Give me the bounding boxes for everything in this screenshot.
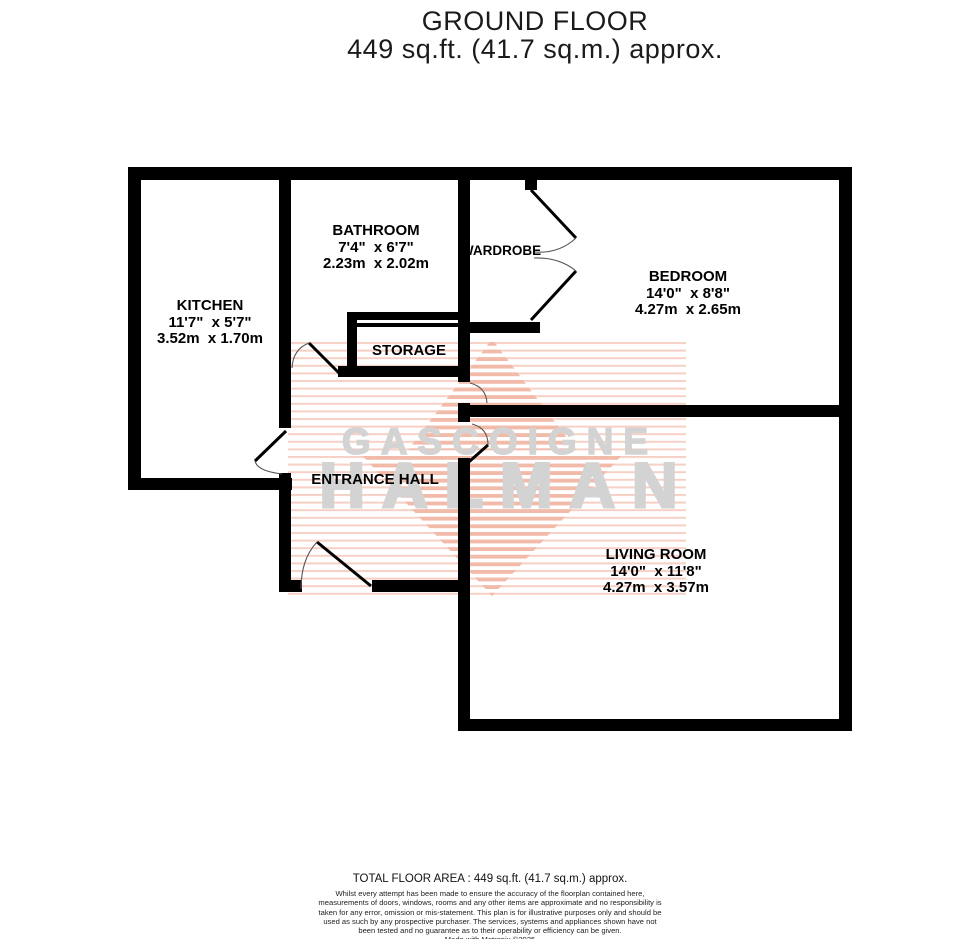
bedroom-door-arc bbox=[470, 383, 487, 403]
bathroom-door-arc bbox=[292, 343, 309, 368]
room-name: BEDROOM bbox=[608, 269, 768, 286]
wall-kitchen-divider-lower bbox=[279, 473, 291, 592]
disclaimer-text: Whilst every attempt has been made to en… bbox=[314, 889, 666, 935]
wall-storage-top bbox=[352, 323, 458, 327]
room-dims-metric: 3.52m x 1.70m bbox=[130, 331, 290, 348]
room-dims-metric: 2.23m x 2.02m bbox=[296, 256, 456, 273]
room-label-living-room: LIVING ROOM 14'0" x 11'8" 4.27m x 3.57m bbox=[576, 547, 736, 597]
kitchen-door-arc bbox=[255, 461, 282, 474]
wall-central-upper bbox=[458, 167, 470, 382]
room-name: STORAGE bbox=[362, 343, 456, 360]
room-label-storage: STORAGE bbox=[362, 343, 456, 360]
wall-hall-bottom-left bbox=[279, 580, 302, 592]
room-dims-imperial: 11'7" x 5'7" bbox=[130, 315, 290, 332]
room-name: WARDROBE bbox=[455, 243, 547, 260]
wall-outer-right bbox=[839, 167, 852, 731]
total-floor-area: TOTAL FLOOR AREA : 449 sq.ft. (41.7 sq.m… bbox=[0, 873, 980, 886]
room-name: LIVING ROOM bbox=[576, 547, 736, 564]
room-dims-imperial: 14'0" x 8'8" bbox=[608, 286, 768, 303]
footer: TOTAL FLOOR AREA : 449 sq.ft. (41.7 sq.m… bbox=[0, 873, 980, 939]
room-label-kitchen: KITCHEN 11'7" x 5'7" 3.52m x 1.70m bbox=[130, 298, 290, 348]
living-door-leaf bbox=[462, 445, 488, 468]
wall-outer-top bbox=[128, 167, 852, 180]
room-dims-imperial: 14'0" x 11'8" bbox=[576, 564, 736, 581]
wall-bathroom-bottom bbox=[347, 312, 470, 320]
wall-wardrobe-bottom bbox=[458, 322, 540, 333]
wardrobe-door-leaf-bottom bbox=[531, 271, 576, 320]
wardrobe-door-arc-bottom bbox=[534, 258, 576, 271]
living-door-arc bbox=[472, 424, 488, 445]
wardrobe-door-leaf-top bbox=[531, 190, 576, 238]
room-name: BATHROOM bbox=[296, 223, 456, 240]
room-label-entrance-hall: ENTRANCE HALL bbox=[295, 472, 455, 489]
kitchen-door-leaf bbox=[255, 431, 286, 461]
wall-living-left bbox=[458, 458, 470, 731]
room-label-bedroom: BEDROOM 14'0" x 8'8" 4.27m x 2.65m bbox=[608, 269, 768, 319]
room-label-wardrobe: WARDROBE bbox=[455, 243, 547, 260]
bathroom-door-leaf bbox=[309, 343, 339, 373]
room-dims-metric: 4.27m x 3.57m bbox=[576, 580, 736, 597]
room-dims-metric: 4.27m x 2.65m bbox=[608, 302, 768, 319]
room-name: ENTRANCE HALL bbox=[295, 472, 455, 489]
floorplan-page: GROUND FLOOR 449 sq.ft. (41.7 sq.m.) app… bbox=[0, 0, 980, 939]
room-dims-imperial: 7'4" x 6'7" bbox=[296, 240, 456, 257]
wall-hall-bottom-right bbox=[372, 580, 470, 592]
wall-bedroom-living-divider bbox=[458, 405, 852, 417]
wall-kitchen-bottom bbox=[128, 478, 292, 490]
room-label-bathroom: BATHROOM 7'4" x 6'7" 2.23m x 2.02m bbox=[296, 223, 456, 273]
floorplan-drawing bbox=[0, 0, 980, 939]
metropix-credit: Made with Metropix ©2025 bbox=[0, 935, 980, 939]
entrance-door-leaf bbox=[317, 542, 371, 586]
wall-wardrobe-stub bbox=[525, 167, 537, 190]
wall-storage-bottom bbox=[338, 366, 470, 377]
wall-living-bottom bbox=[458, 719, 852, 731]
room-name: KITCHEN bbox=[130, 298, 290, 315]
entrance-door-arc bbox=[301, 542, 317, 589]
